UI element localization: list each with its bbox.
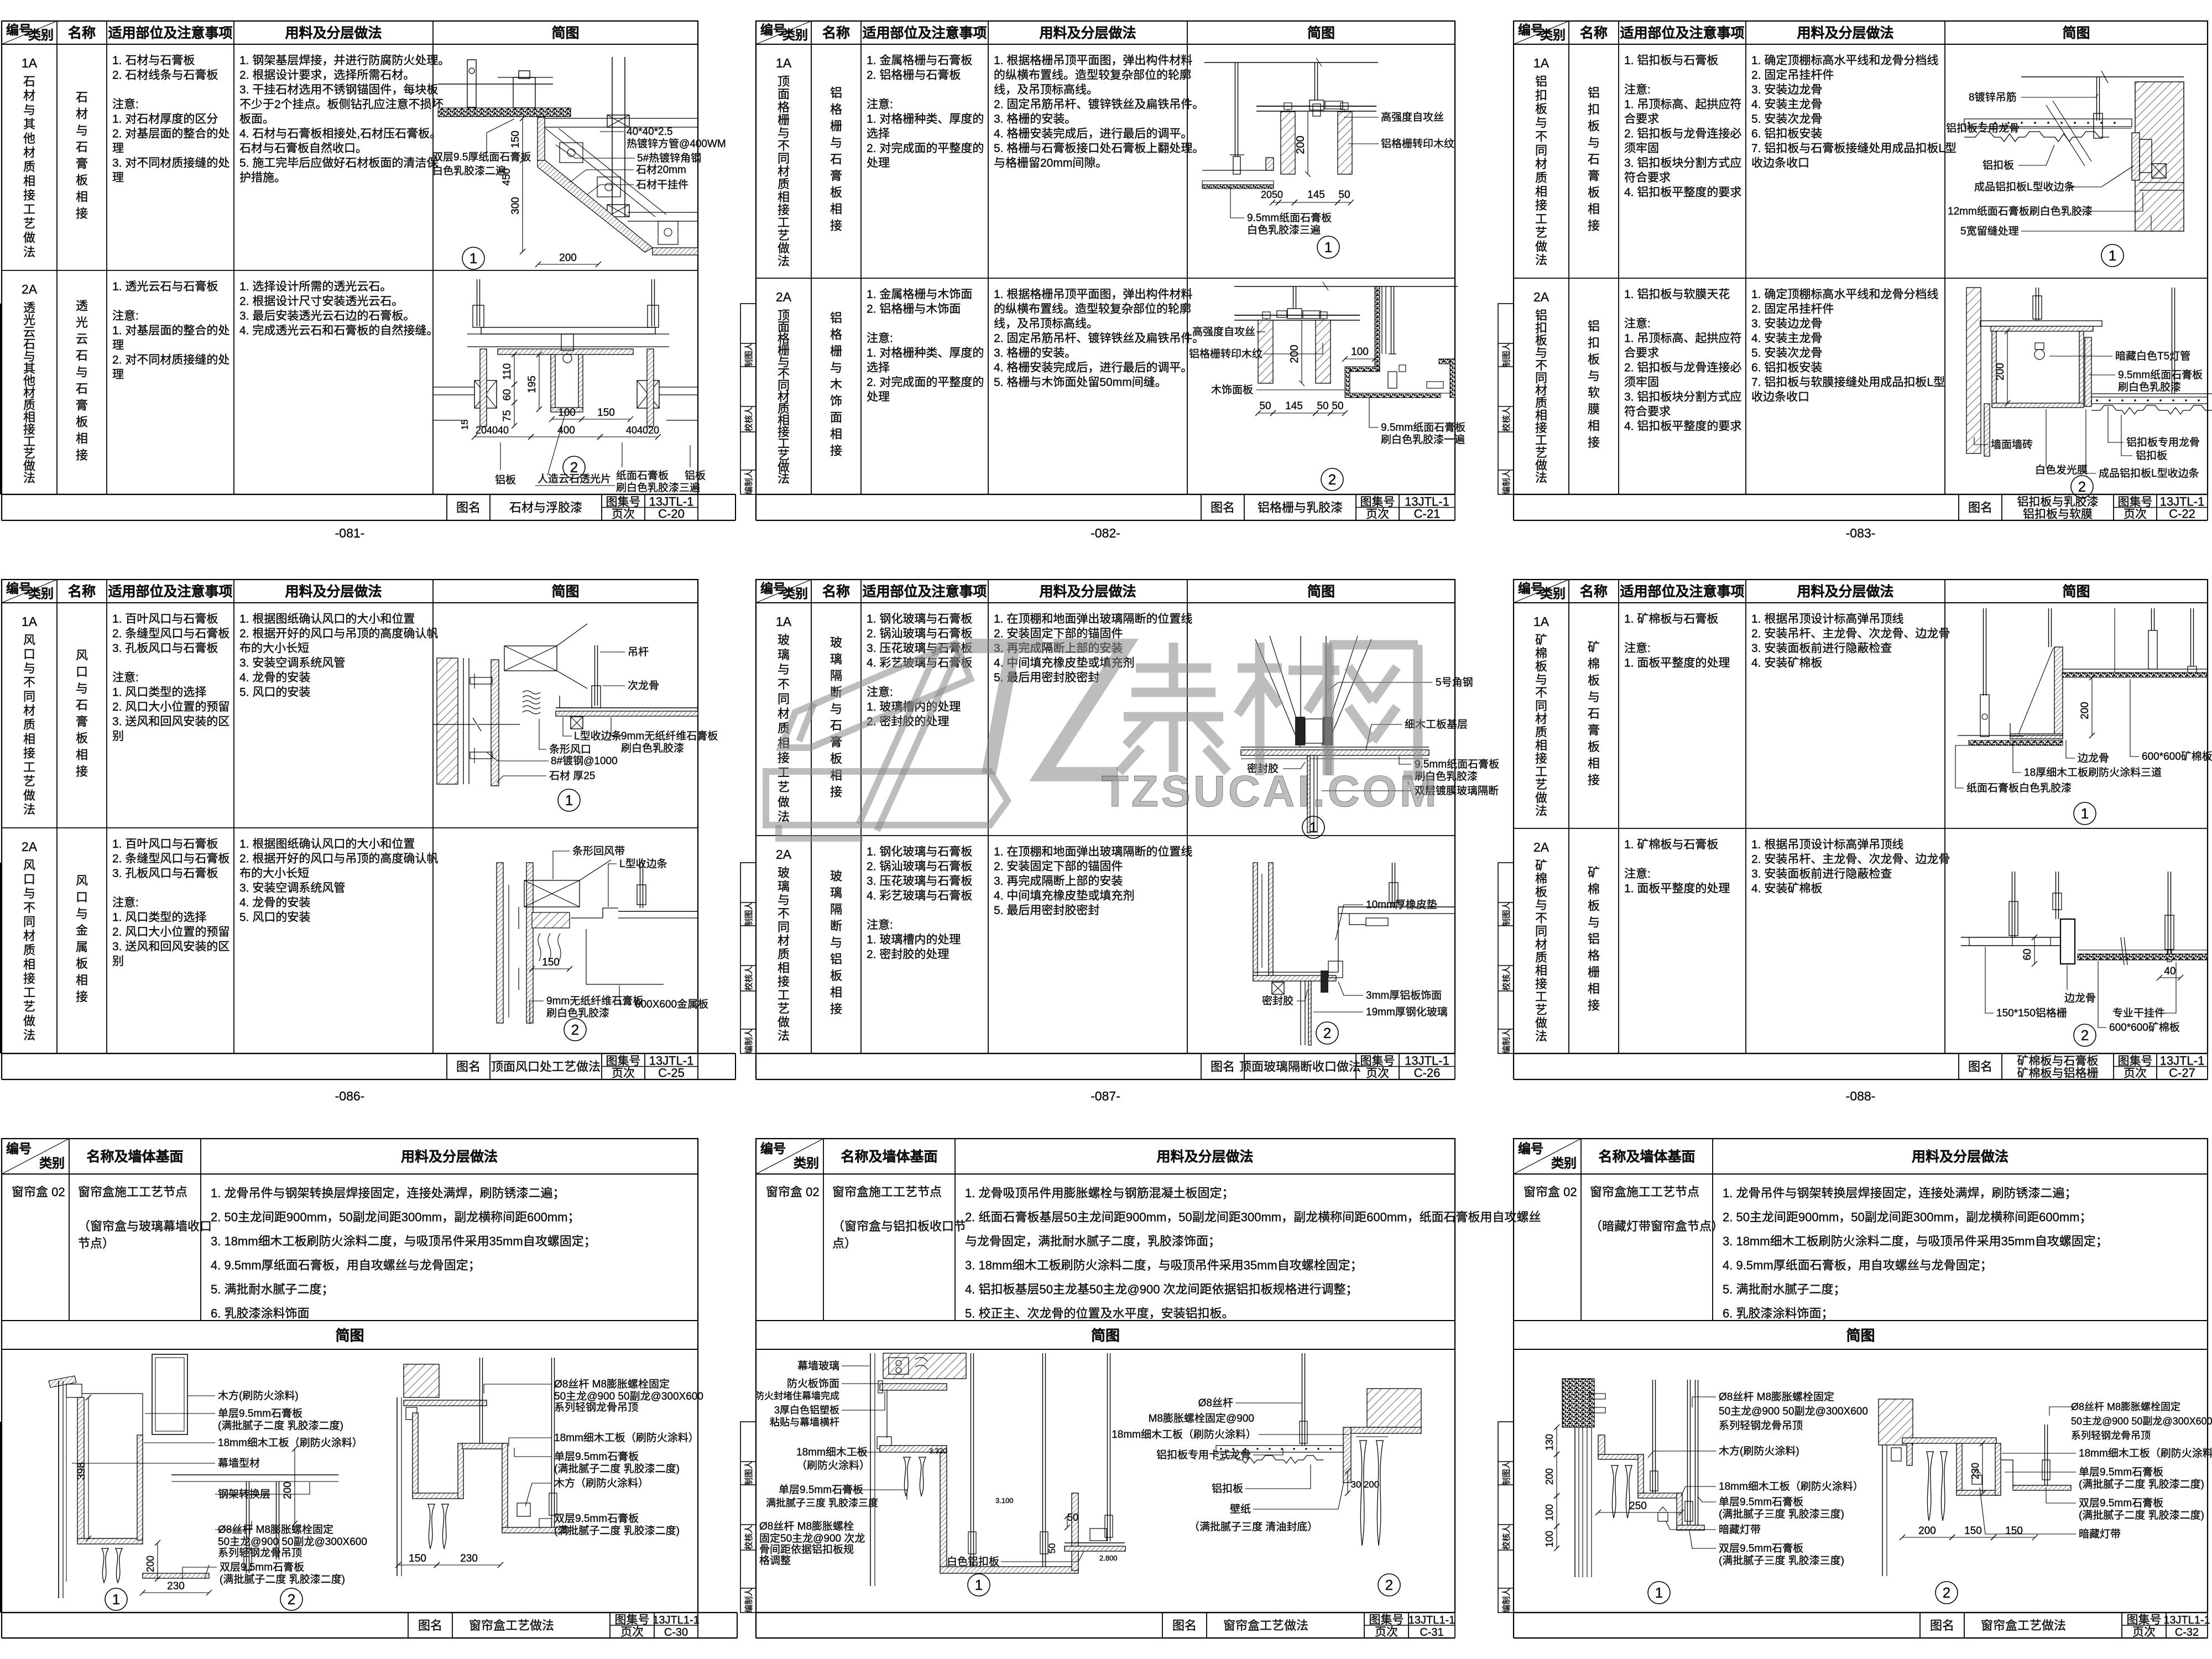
svg-text:铝扣板: 铝扣板 xyxy=(2136,450,2167,462)
svg-text:断: 断 xyxy=(830,919,842,933)
svg-text:3. 安装边龙骨: 3. 安装边龙骨 xyxy=(1751,317,1822,330)
svg-text:图名: 图名 xyxy=(1211,1060,1235,1074)
svg-text:制图人: 制图人 xyxy=(1502,1460,1511,1485)
svg-text:600*600矿棉板: 600*600矿棉板 xyxy=(2109,1021,2180,1034)
svg-text:图名: 图名 xyxy=(1930,1619,1954,1632)
svg-text:类别: 类别 xyxy=(39,1156,65,1170)
svg-text:材: 材 xyxy=(1535,157,1547,171)
svg-text:适用部位及注意事项: 适用部位及注意事项 xyxy=(108,25,232,41)
svg-text:不: 不 xyxy=(23,901,35,915)
svg-text:2. 安装吊杆、主龙骨、次龙骨、边龙骨: 2. 安装吊杆、主龙骨、次龙骨、边龙骨 xyxy=(1751,853,1950,866)
svg-text:工: 工 xyxy=(1535,990,1547,1004)
svg-text:系列轻钢龙骨吊顶: 系列轻钢龙骨吊顶 xyxy=(218,1547,302,1559)
svg-text:18mm细木工板（刷防火涂料）: 18mm细木工板（刷防火涂料） xyxy=(1112,1428,1256,1441)
svg-text:15: 15 xyxy=(460,420,470,430)
svg-text:3. 安装边龙骨: 3. 安装边龙骨 xyxy=(1751,84,1822,96)
svg-text:230: 230 xyxy=(460,1553,478,1564)
svg-text:-082-: -082- xyxy=(1091,526,1120,540)
svg-text:木饰面板: 木饰面板 xyxy=(1211,384,1253,396)
svg-text:质: 质 xyxy=(1535,726,1547,739)
svg-text:2: 2 xyxy=(2081,1027,2089,1044)
svg-text:理: 理 xyxy=(112,171,124,184)
svg-text:不: 不 xyxy=(1535,358,1547,372)
svg-text:金: 金 xyxy=(76,924,88,937)
svg-text:1. 对石材厚度的区分: 1. 对石材厚度的区分 xyxy=(112,113,218,126)
svg-text:校核人: 校核人 xyxy=(1502,406,1511,431)
svg-text:暗藏灯带: 暗藏灯带 xyxy=(1719,1524,1761,1536)
svg-text:类别: 类别 xyxy=(28,28,54,42)
svg-text:1. 石材与石膏板: 1. 石材与石膏板 xyxy=(112,54,195,67)
svg-text:不: 不 xyxy=(23,676,35,690)
svg-text:3.320: 3.320 xyxy=(929,1447,947,1455)
svg-text:板: 板 xyxy=(1535,102,1547,116)
svg-text:做: 做 xyxy=(778,795,790,809)
svg-text:软: 软 xyxy=(1588,386,1600,400)
svg-text:(满批腻子三度 乳胶漆三度): (满批腻子三度 乳胶漆三度) xyxy=(1719,1508,1844,1520)
svg-text:做: 做 xyxy=(23,231,35,245)
svg-text:页次: 页次 xyxy=(1366,508,1389,521)
svg-text:棉: 棉 xyxy=(1535,872,1547,886)
svg-text:玻: 玻 xyxy=(830,636,842,650)
svg-text:的纵横布置线。造型较复杂部位的轮廓: 的纵横布置线。造型较复杂部位的轮廓 xyxy=(994,69,1191,82)
svg-text:板: 板 xyxy=(830,969,842,983)
svg-text:高强度自攻丝: 高强度自攻丝 xyxy=(1192,326,1255,338)
svg-text:1A: 1A xyxy=(22,56,38,70)
svg-text:18mm细木工板（刷防火涂料）: 18mm细木工板（刷防火涂料） xyxy=(2079,1447,2212,1459)
svg-text:注意:: 注意: xyxy=(112,896,139,909)
svg-text:与: 与 xyxy=(830,136,842,150)
svg-text:1. 吊顶标高、起拱应符: 1. 吊顶标高、起拱应符 xyxy=(1624,332,1741,345)
svg-text:质: 质 xyxy=(1535,951,1547,964)
svg-text:4. 9.5mm厚纸面石膏板，用自攻螺丝与龙骨固定；: 4. 9.5mm厚纸面石膏板，用自攻螺丝与龙骨固定； xyxy=(1723,1259,1992,1272)
svg-text:编制人: 编制人 xyxy=(1502,1588,1511,1613)
svg-text:与: 与 xyxy=(76,124,88,138)
svg-text:口: 口 xyxy=(76,890,88,904)
svg-text:图名: 图名 xyxy=(456,501,481,515)
svg-text:点）: 点） xyxy=(832,1237,857,1250)
svg-text:工: 工 xyxy=(1535,212,1547,226)
svg-text:棉: 棉 xyxy=(1588,657,1600,671)
svg-text:40*40*2.5: 40*40*2.5 xyxy=(627,126,672,138)
svg-text:石材 厚25: 石材 厚25 xyxy=(549,770,595,782)
svg-text:50: 50 xyxy=(1067,1512,1078,1523)
svg-text:(满批腻子二度 乳胶漆二度): (满批腻子二度 乳胶漆二度) xyxy=(218,1420,343,1432)
svg-text:栅: 栅 xyxy=(830,119,842,133)
svg-text:1. 百叶风口与石膏板: 1. 百叶风口与石膏板 xyxy=(112,613,218,625)
svg-text:艺: 艺 xyxy=(23,1000,35,1014)
svg-text:1. 面板平整度的处理: 1. 面板平整度的处理 xyxy=(1624,883,1730,895)
svg-text:C-21: C-21 xyxy=(1414,507,1441,521)
svg-text:100: 100 xyxy=(1351,346,1369,358)
svg-text:铝扣板: 铝扣板 xyxy=(1983,159,2014,171)
svg-text:1. 对格栅种类、厚度的: 1. 对格栅种类、厚度的 xyxy=(867,347,984,359)
svg-text:口: 口 xyxy=(23,873,35,886)
svg-text:矿: 矿 xyxy=(1535,633,1547,647)
svg-text:Ø8丝杆 M8膨胀螺栓固定: Ø8丝杆 M8膨胀螺栓固定 xyxy=(1719,1391,1834,1403)
svg-text:面: 面 xyxy=(778,87,790,101)
svg-text:1: 1 xyxy=(112,1591,120,1608)
svg-text:材: 材 xyxy=(23,89,35,103)
svg-text:2. 根据设计尺寸安装透光云石。: 2. 根据设计尺寸安装透光云石。 xyxy=(239,295,403,308)
svg-text:1. 钢化玻璃与石膏板: 1. 钢化玻璃与石膏板 xyxy=(867,613,972,625)
svg-text:相: 相 xyxy=(830,202,842,216)
svg-text:相: 相 xyxy=(76,190,88,204)
svg-text:简图: 简图 xyxy=(1846,1327,1875,1344)
svg-text:100: 100 xyxy=(1544,1531,1555,1547)
svg-text:艺: 艺 xyxy=(778,228,790,242)
svg-text:材: 材 xyxy=(778,934,790,948)
svg-text:1. 透光云石与石膏板: 1. 透光云石与石膏板 xyxy=(112,280,218,293)
svg-text:2: 2 xyxy=(571,1021,579,1038)
svg-text:板: 板 xyxy=(1535,333,1547,347)
svg-text:合要求: 合要求 xyxy=(1624,113,1659,126)
svg-text:3. 干挂石材选用不锈钢锚固件，每块板: 3. 干挂石材选用不锈钢锚固件，每块板 xyxy=(239,84,438,96)
svg-text:与格栅留20mm间隙。: 与格栅留20mm间隙。 xyxy=(994,157,1107,170)
svg-text:5. 满批耐水腻子二度；: 5. 满批耐水腻子二度； xyxy=(211,1282,333,1296)
svg-text:与: 与 xyxy=(830,936,842,950)
svg-text:145: 145 xyxy=(1307,189,1325,201)
svg-text:2. 根据开好的风口与吊顶的高度确认帆: 2. 根据开好的风口与吊顶的高度确认帆 xyxy=(239,628,438,640)
svg-text:4. 铝扣板基层50主龙基50主龙@900 次龙间距依据铝扣: 4. 铝扣板基层50主龙基50主龙@900 次龙间距依据铝扣板规格进行调整； xyxy=(965,1282,1358,1296)
svg-text:2. 安装吊杆、主龙骨、次龙骨、边龙骨: 2. 安装吊杆、主龙骨、次龙骨、边龙骨 xyxy=(1751,628,1950,640)
svg-text:200: 200 xyxy=(1364,1479,1379,1490)
svg-text:1. 百叶风口与石膏板: 1. 百叶风口与石膏板 xyxy=(112,838,218,851)
svg-text:做: 做 xyxy=(23,789,35,802)
svg-text:板: 板 xyxy=(830,752,842,766)
svg-text:TZSUCAI.COM: TZSUCAI.COM xyxy=(1102,766,1439,816)
svg-text:1. 在顶棚和地面弹出玻璃隔断的位置线: 1. 在顶棚和地面弹出玻璃隔断的位置线 xyxy=(994,613,1192,625)
svg-text:理: 理 xyxy=(112,142,124,155)
svg-text:编制人: 编制人 xyxy=(1502,469,1511,494)
svg-text:石: 石 xyxy=(23,75,35,88)
svg-text:制图人: 制图人 xyxy=(1502,901,1511,926)
svg-text:工: 工 xyxy=(23,986,35,1000)
svg-text:19mm厚钢化玻璃: 19mm厚钢化玻璃 xyxy=(1366,1006,1448,1018)
svg-text:600*600矿棉板: 600*600矿棉板 xyxy=(2142,750,2212,763)
svg-text:相: 相 xyxy=(23,174,35,188)
svg-text:图集号: 图集号 xyxy=(2118,1055,2153,1068)
svg-text:(满批腻子二度 乳胶漆二度): (满批腻子二度 乳胶漆二度) xyxy=(554,1525,680,1537)
svg-text:板: 板 xyxy=(1588,674,1600,687)
svg-text:150: 150 xyxy=(597,407,615,419)
svg-text:C-26: C-26 xyxy=(1414,1066,1441,1080)
svg-text:用料及分层做法: 用料及分层做法 xyxy=(1039,25,1136,41)
svg-text:13JTL1-1: 13JTL1-1 xyxy=(653,1614,700,1626)
svg-text:C-25: C-25 xyxy=(658,1066,685,1080)
svg-text:系列轻钢龙骨吊顶: 系列轻钢龙骨吊顶 xyxy=(2071,1430,2151,1441)
svg-text:材: 材 xyxy=(1535,383,1547,397)
svg-text:C-32: C-32 xyxy=(2175,1626,2199,1639)
svg-text:-087-: -087- xyxy=(1091,1089,1120,1103)
svg-text:404020: 404020 xyxy=(626,425,659,436)
svg-text:名称: 名称 xyxy=(68,25,96,41)
svg-text:3mm厚铝板饰面: 3mm厚铝板饰面 xyxy=(1366,989,1442,1001)
svg-text:石材与石膏板自然收口。: 石材与石膏板自然收口。 xyxy=(239,142,367,155)
svg-text:系列轻钢龙骨吊顶: 系列轻钢龙骨吊顶 xyxy=(1719,1420,1803,1432)
svg-text:膏: 膏 xyxy=(1588,723,1600,737)
svg-text:铝格栅与乳胶漆: 铝格栅与乳胶漆 xyxy=(1258,501,1343,515)
svg-text:相: 相 xyxy=(1588,982,1600,996)
svg-text:棉: 棉 xyxy=(1535,646,1547,660)
svg-text:4. 安装主龙骨: 4. 安装主龙骨 xyxy=(1751,98,1822,111)
svg-text:1: 1 xyxy=(565,792,573,808)
svg-text:光: 光 xyxy=(76,316,88,330)
svg-text:类别: 类别 xyxy=(794,1156,819,1170)
svg-text:云: 云 xyxy=(76,332,88,346)
svg-text:4. 安装主龙骨: 4. 安装主龙骨 xyxy=(1751,332,1822,345)
svg-text:接: 接 xyxy=(23,746,35,760)
svg-text:4. 安装矿棉板: 4. 安装矿棉板 xyxy=(1751,883,1822,895)
svg-text:1: 1 xyxy=(1310,819,1317,836)
svg-text:木方（刷防火涂料）: 木方（刷防火涂料） xyxy=(554,1477,649,1489)
svg-text:透: 透 xyxy=(76,299,88,313)
svg-text:收边条收口: 收边条收口 xyxy=(1751,157,1809,170)
svg-text:质: 质 xyxy=(1535,396,1547,410)
svg-text:艺: 艺 xyxy=(778,1001,790,1015)
svg-text:4. 中间填充橡皮垫或填充剂: 4. 中间填充橡皮垫或填充剂 xyxy=(994,890,1134,902)
svg-text:注意:: 注意: xyxy=(1624,84,1651,96)
svg-text:不: 不 xyxy=(1535,911,1547,925)
svg-text:相: 相 xyxy=(830,985,842,999)
svg-text:2A: 2A xyxy=(1533,840,1550,854)
svg-text:图名: 图名 xyxy=(1172,1619,1197,1632)
svg-text:4. 格栅安装完成后，进行最后的调平。: 4. 格栅安装完成后，进行最后的调平。 xyxy=(994,128,1192,140)
svg-text:2. 固定吊挂杆件: 2. 固定吊挂杆件 xyxy=(1751,69,1834,82)
svg-text:2A: 2A xyxy=(776,847,792,862)
svg-text:2. 根据设计要求，选择所需石材。: 2. 根据设计要求，选择所需石材。 xyxy=(239,69,415,82)
svg-text:艺: 艺 xyxy=(1535,1003,1547,1017)
svg-text:同: 同 xyxy=(1535,371,1547,385)
svg-text:1. 吊顶标高、起拱应符: 1. 吊顶标高、起拱应符 xyxy=(1624,98,1741,111)
svg-text:页次: 页次 xyxy=(2132,1626,2156,1639)
svg-text:相: 相 xyxy=(1588,419,1600,433)
svg-text:（刷防火涂料）: （刷防火涂料） xyxy=(796,1459,870,1472)
svg-text:1. 铝扣板与石膏板: 1. 铝扣板与石膏板 xyxy=(1624,54,1718,67)
svg-text:相: 相 xyxy=(778,190,790,204)
svg-text:3. 送风和回风安装的区: 3. 送风和回风安装的区 xyxy=(112,716,229,728)
svg-text:2: 2 xyxy=(1328,471,1336,488)
svg-text:简图: 简图 xyxy=(551,583,579,599)
svg-text:与: 与 xyxy=(1535,116,1547,130)
svg-text:单层9.5mm石膏板: 单层9.5mm石膏板 xyxy=(1719,1495,1803,1508)
svg-text:3. 再完成隔断上部的安装: 3. 再完成隔断上部的安装 xyxy=(994,875,1123,888)
svg-text:相: 相 xyxy=(76,432,88,446)
svg-text:3. 18mm细木工板刷防火涂料二度，与吸顶吊件采用35mm: 3. 18mm细木工板刷防火涂料二度，与吸顶吊件采用35mm自攻螺固定； xyxy=(1723,1234,2108,1248)
svg-text:与: 与 xyxy=(1535,898,1547,912)
svg-text:须牢固: 须牢固 xyxy=(1624,376,1659,389)
svg-text:石: 石 xyxy=(830,719,842,733)
svg-text:铝扣板与软膜: 铝扣板与软膜 xyxy=(2023,508,2093,521)
svg-text:30: 30 xyxy=(1351,1479,1361,1490)
svg-text:别: 别 xyxy=(112,955,124,968)
svg-text:编制人: 编制人 xyxy=(1502,1029,1511,1053)
svg-text:3. 格栅的安装。: 3. 格栅的安装。 xyxy=(994,347,1076,359)
svg-text:6. 铝扣板安装: 6. 铝扣板安装 xyxy=(1751,362,1822,374)
svg-text:C-20: C-20 xyxy=(658,507,685,521)
svg-text:铝: 铝 xyxy=(1588,932,1600,946)
svg-text:145: 145 xyxy=(1285,400,1303,412)
svg-text:石: 石 xyxy=(830,153,842,166)
svg-text:2A: 2A xyxy=(22,839,38,854)
svg-text:1. 钢架基层焊接，并进行防腐防火处理。: 1. 钢架基层焊接，并进行防腐防火处理。 xyxy=(239,54,450,67)
svg-text:法: 法 xyxy=(1535,253,1547,267)
svg-text:4. 安装矿棉板: 4. 安装矿棉板 xyxy=(1751,657,1822,670)
svg-text:40: 40 xyxy=(2164,966,2176,977)
svg-text:1: 1 xyxy=(469,250,477,267)
svg-text:5. 安装次龙骨: 5. 安装次龙骨 xyxy=(1751,347,1822,359)
svg-text:制图人: 制图人 xyxy=(744,342,754,367)
svg-text:1. 面板平整度的处理: 1. 面板平整度的处理 xyxy=(1624,657,1730,670)
svg-text:风: 风 xyxy=(76,874,88,888)
svg-text:属: 属 xyxy=(76,940,88,954)
svg-text:用料及分层做法: 用料及分层做法 xyxy=(285,584,382,599)
svg-text:工: 工 xyxy=(1535,434,1547,447)
svg-text:1. 风口类型的选择: 1. 风口类型的选择 xyxy=(112,911,206,924)
svg-text:200: 200 xyxy=(1918,1525,1936,1537)
svg-text:2. 固定吊筋吊杆、镀锌铁丝及扁铁吊件。: 2. 固定吊筋吊杆、镀锌铁丝及扁铁吊件。 xyxy=(994,98,1204,111)
svg-text:100: 100 xyxy=(558,407,576,419)
svg-text:名称: 名称 xyxy=(1580,583,1608,599)
svg-text:矿棉板与石膏板: 矿棉板与石膏板 xyxy=(2017,1055,2099,1068)
svg-text:2. 锅汕玻璃与石膏板: 2. 锅汕玻璃与石膏板 xyxy=(867,860,972,873)
svg-text:接: 接 xyxy=(1535,752,1547,765)
svg-text:用料及分层做法: 用料及分层做法 xyxy=(401,1149,498,1165)
svg-text:6. 乳胶漆涂料饰面: 6. 乳胶漆涂料饰面 xyxy=(211,1307,309,1321)
svg-text:-086-: -086- xyxy=(335,1089,365,1103)
svg-text:栅: 栅 xyxy=(830,345,842,358)
svg-text:校核人: 校核人 xyxy=(1502,1525,1511,1550)
svg-text:C-30: C-30 xyxy=(664,1626,688,1639)
svg-text:窗帘盒工艺做法: 窗帘盒工艺做法 xyxy=(1223,1619,1308,1632)
svg-text:法: 法 xyxy=(1535,471,1547,484)
svg-text:适用部位及注意事项: 适用部位及注意事项 xyxy=(108,583,232,599)
svg-text:布的大小长短: 布的大小长短 xyxy=(239,867,309,880)
svg-text:接: 接 xyxy=(1535,199,1547,212)
svg-text:250: 250 xyxy=(1629,1500,1647,1512)
svg-text:3. 安装面板前进行隐蔽检查: 3. 安装面板前进行隐蔽检查 xyxy=(1751,642,1892,655)
svg-text:高强度自攻丝: 高强度自攻丝 xyxy=(1381,111,1444,123)
svg-text:线，及吊顶标高线。: 线，及吊顶标高线。 xyxy=(994,84,1098,96)
svg-text:2. 条缝型风口与石膏板: 2. 条缝型风口与石膏板 xyxy=(112,628,229,640)
svg-text:相: 相 xyxy=(778,961,790,975)
svg-text:艺: 艺 xyxy=(1535,226,1547,239)
svg-text:适用部位及注意事项: 适用部位及注意事项 xyxy=(862,25,987,41)
svg-text:100: 100 xyxy=(1544,1504,1555,1521)
svg-text:名称及墙体基面: 名称及墙体基面 xyxy=(1598,1149,1695,1165)
svg-text:窗帘盒 02: 窗帘盒 02 xyxy=(766,1185,820,1199)
svg-text:1: 1 xyxy=(975,1577,983,1593)
svg-text:图集号: 图集号 xyxy=(2118,496,2153,509)
svg-text:密封胶: 密封胶 xyxy=(1262,995,1293,1007)
svg-text:材: 材 xyxy=(23,704,35,718)
svg-text:3. 孔板风口与石膏板: 3. 孔板风口与石膏板 xyxy=(112,642,218,655)
svg-text:选择: 选择 xyxy=(867,128,890,140)
svg-text:(满批腻子三度 乳胶漆三度): (满批腻子三度 乳胶漆三度) xyxy=(1719,1554,1844,1567)
svg-text:2. 固定吊挂杆件: 2. 固定吊挂杆件 xyxy=(1751,303,1834,316)
svg-text:防火板饰面: 防火板饰面 xyxy=(787,1378,839,1390)
svg-text:相: 相 xyxy=(1588,202,1600,216)
svg-text:质: 质 xyxy=(778,947,790,961)
svg-text:类别: 类别 xyxy=(28,586,54,601)
svg-text:相: 相 xyxy=(76,973,88,987)
svg-text:质: 质 xyxy=(23,943,35,957)
svg-text:铝扣板与乳胶漆: 铝扣板与乳胶漆 xyxy=(2017,496,2099,509)
svg-text:1. 确定顶棚标高水平线和龙骨分档线: 1. 确定顶棚标高水平线和龙骨分档线 xyxy=(1751,54,1938,67)
svg-text:简图: 简图 xyxy=(2062,25,2090,41)
svg-text:-088-: -088- xyxy=(1846,1089,1876,1103)
svg-text:板: 板 xyxy=(1588,740,1600,754)
svg-text:2: 2 xyxy=(288,1591,295,1608)
svg-text:1. 根据图纸确认风口的大小和位置: 1. 根据图纸确认风口的大小和位置 xyxy=(239,613,415,625)
svg-text:9mm无纸纤维石膏板: 9mm无纸纤维石膏板 xyxy=(546,994,643,1007)
svg-text:注意:: 注意: xyxy=(867,919,893,932)
svg-text:其: 其 xyxy=(23,117,35,131)
svg-text:名称: 名称 xyxy=(1580,25,1608,41)
svg-text:3. 铝扣板块分割方式应: 3. 铝扣板块分割方式应 xyxy=(1624,157,1741,170)
svg-text:纸面石膏板: 纸面石膏板 xyxy=(616,469,669,482)
svg-text:相: 相 xyxy=(830,427,842,441)
svg-text:隔: 隔 xyxy=(830,902,842,916)
svg-text:格调整: 格调整 xyxy=(759,1554,791,1567)
svg-text:满批腻子三度 乳胶漆三度: 满批腻子三度 乳胶漆三度 xyxy=(766,1498,878,1509)
svg-text:扣: 扣 xyxy=(1535,88,1547,102)
svg-text:Ø8丝杆 M8膨胀螺栓: Ø8丝杆 M8膨胀螺栓 xyxy=(759,1520,854,1532)
svg-text:9.5mm纸面石膏板: 9.5mm纸面石膏板 xyxy=(1381,421,1465,434)
svg-text:1A: 1A xyxy=(776,56,792,70)
svg-text:刷白色乳胶漆: 刷白色乳胶漆 xyxy=(2118,381,2181,393)
svg-text:法: 法 xyxy=(1535,804,1547,818)
svg-text:C-31: C-31 xyxy=(1420,1626,1443,1639)
svg-text:200: 200 xyxy=(1544,1468,1555,1485)
svg-text:板: 板 xyxy=(830,186,842,200)
svg-text:做: 做 xyxy=(778,1015,790,1029)
svg-text:接: 接 xyxy=(1588,999,1600,1013)
svg-text:与: 与 xyxy=(1535,672,1547,686)
svg-text:页次: 页次 xyxy=(612,1067,635,1080)
svg-text:窗帘盒工艺做法: 窗帘盒工艺做法 xyxy=(1981,1619,2066,1632)
svg-text:板: 板 xyxy=(1588,119,1600,133)
svg-text:200: 200 xyxy=(145,1556,156,1572)
svg-text:简图: 简图 xyxy=(1091,1327,1120,1344)
svg-text:图名: 图名 xyxy=(1968,501,1992,515)
svg-text:双层9.5mm石膏板: 双层9.5mm石膏板 xyxy=(1719,1542,1803,1554)
svg-text:铝: 铝 xyxy=(830,952,842,966)
svg-text:边龙骨: 边龙骨 xyxy=(2078,752,2109,764)
svg-text:质: 质 xyxy=(1535,171,1547,185)
svg-text:3.100: 3.100 xyxy=(995,1496,1014,1505)
svg-text:200: 200 xyxy=(282,1481,294,1499)
svg-text:板: 板 xyxy=(1588,353,1600,367)
svg-text:艺: 艺 xyxy=(23,774,35,788)
svg-text:3. 格栅的安装。: 3. 格栅的安装。 xyxy=(994,113,1076,126)
svg-text:护措施。: 护措施。 xyxy=(239,171,286,184)
svg-text:幕墙型材: 幕墙型材 xyxy=(218,1457,260,1469)
svg-text:200: 200 xyxy=(1995,363,2006,380)
svg-text:50主龙@900 50副龙@300X600: 50主龙@900 50副龙@300X600 xyxy=(1719,1405,1868,1417)
svg-text:50: 50 xyxy=(1332,400,1343,412)
svg-text:条形风口: 条形风口 xyxy=(549,743,591,755)
svg-text:页次: 页次 xyxy=(1375,1626,1398,1639)
svg-text:铝格栅转印木纹: 铝格栅转印木纹 xyxy=(1381,138,1454,150)
svg-text:骨间距依据铝扣板规: 骨间距依据铝扣板规 xyxy=(759,1543,854,1556)
svg-text:双层9.5mm石膏板: 双层9.5mm石膏板 xyxy=(220,1561,304,1573)
svg-text:做: 做 xyxy=(1535,791,1547,805)
svg-text:3. 18mm细木工板刷防火涂料二度，与吸顶吊件采用35mm: 3. 18mm细木工板刷防火涂料二度，与吸顶吊件采用35mm自攻螺栓固定； xyxy=(965,1259,1363,1272)
svg-text:条形回风带: 条形回风带 xyxy=(572,845,625,857)
svg-text:与: 与 xyxy=(23,661,35,675)
svg-text:接: 接 xyxy=(1588,219,1600,233)
svg-text:类别: 类别 xyxy=(782,586,808,601)
